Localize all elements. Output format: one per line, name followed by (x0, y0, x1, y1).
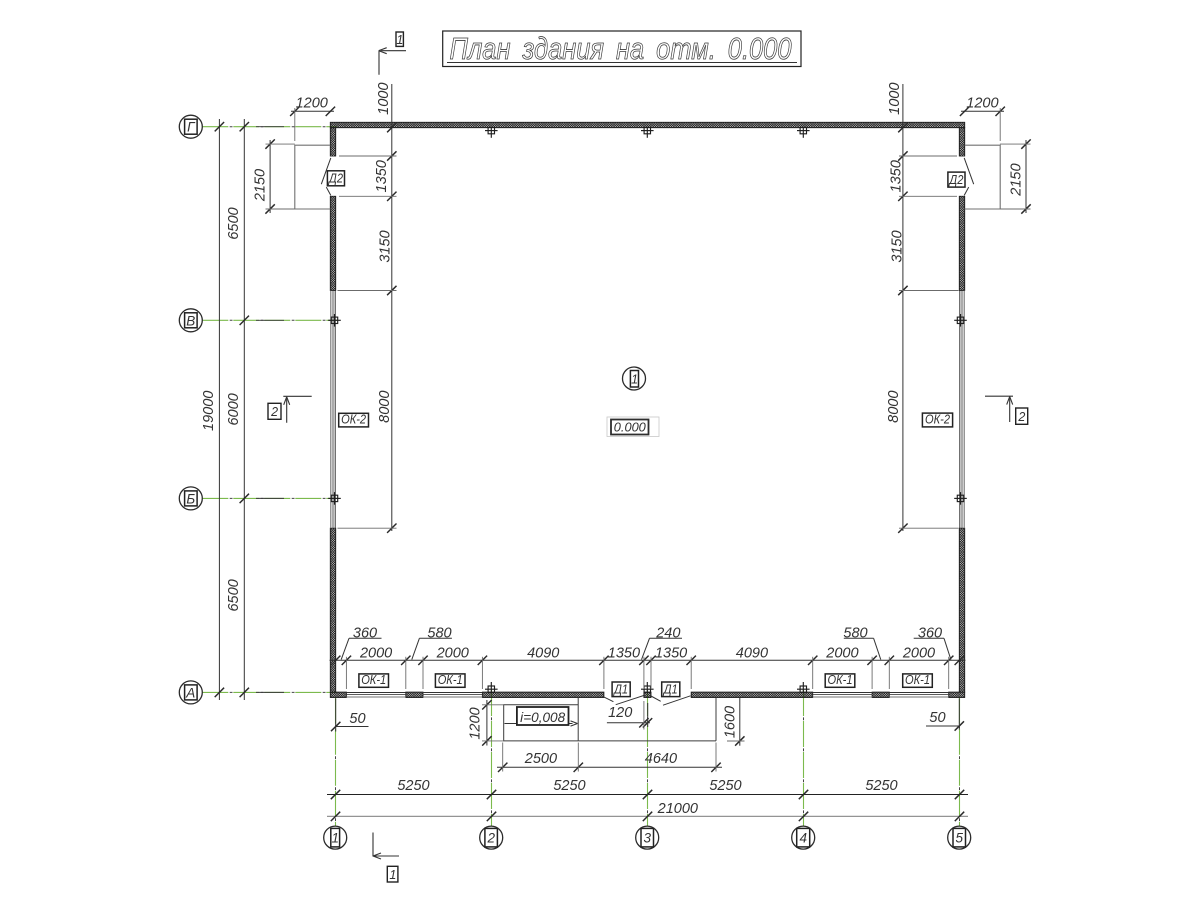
svg-text:1350: 1350 (655, 645, 687, 661)
svg-text:План здания на отм. 0.000: План здания на отм. 0.000 (450, 31, 792, 66)
svg-text:4640: 4640 (645, 751, 677, 767)
svg-text:8000: 8000 (886, 391, 902, 423)
svg-text:Д1: Д1 (612, 682, 628, 696)
svg-text:3: 3 (643, 831, 651, 846)
svg-text:1350: 1350 (889, 160, 905, 192)
svg-text:ОК-1: ОК-1 (828, 673, 853, 687)
svg-text:1000: 1000 (376, 83, 392, 115)
svg-text:3150: 3150 (378, 230, 394, 262)
svg-text:1600: 1600 (723, 706, 739, 738)
svg-text:580: 580 (843, 626, 867, 642)
svg-text:2: 2 (1017, 410, 1025, 424)
svg-text:50: 50 (929, 710, 945, 726)
svg-text:2: 2 (270, 405, 278, 419)
svg-text:4: 4 (799, 831, 807, 846)
svg-text:2500: 2500 (524, 751, 557, 767)
svg-text:1200: 1200 (966, 96, 998, 112)
svg-text:i=0,008: i=0,008 (520, 710, 565, 725)
svg-text:8000: 8000 (377, 391, 393, 423)
svg-text:21000: 21000 (657, 801, 698, 817)
svg-text:1: 1 (631, 372, 638, 386)
svg-text:ОК-1: ОК-1 (905, 673, 930, 687)
svg-text:6500: 6500 (226, 579, 242, 611)
svg-text:Д1: Д1 (662, 682, 678, 696)
svg-text:1: 1 (389, 868, 396, 882)
svg-text:5250: 5250 (553, 778, 585, 794)
svg-text:2000: 2000 (436, 645, 469, 661)
svg-text:1: 1 (331, 831, 339, 846)
svg-text:1350: 1350 (608, 645, 640, 661)
svg-text:1200: 1200 (468, 707, 484, 739)
svg-text:4090: 4090 (527, 645, 559, 661)
svg-text:240: 240 (655, 626, 680, 642)
svg-text:1000: 1000 (887, 83, 903, 115)
svg-text:ОК-1: ОК-1 (438, 673, 463, 687)
svg-text:360: 360 (353, 626, 377, 642)
svg-text:ОК-2: ОК-2 (341, 413, 366, 427)
svg-text:5: 5 (955, 831, 963, 846)
svg-text:ОК-1: ОК-1 (361, 673, 386, 687)
svg-text:1200: 1200 (296, 96, 328, 112)
svg-text:Б: Б (186, 491, 195, 506)
svg-text:360: 360 (918, 626, 942, 642)
svg-text:19000: 19000 (201, 391, 217, 431)
svg-text:6500: 6500 (226, 207, 242, 239)
svg-text:А: А (185, 685, 195, 700)
svg-text:Д2: Д2 (948, 173, 964, 187)
svg-text:В: В (186, 313, 195, 328)
svg-text:2000: 2000 (359, 645, 392, 661)
svg-text:120: 120 (608, 705, 632, 721)
svg-text:1350: 1350 (374, 160, 390, 192)
svg-text:2000: 2000 (825, 645, 858, 661)
svg-text:50: 50 (349, 711, 365, 727)
svg-text:2150: 2150 (252, 169, 268, 202)
svg-text:2000: 2000 (902, 645, 935, 661)
svg-text:0.000: 0.000 (614, 420, 646, 434)
svg-text:6000: 6000 (226, 393, 242, 425)
svg-text:5250: 5250 (865, 778, 897, 794)
svg-text:1: 1 (396, 33, 403, 47)
svg-text:4090: 4090 (736, 645, 768, 661)
svg-text:5250: 5250 (397, 778, 429, 794)
svg-text:580: 580 (427, 626, 451, 642)
svg-text:2: 2 (486, 831, 495, 846)
svg-text:ОК-2: ОК-2 (925, 413, 950, 427)
svg-text:3150: 3150 (890, 230, 906, 262)
svg-text:Д2: Д2 (327, 172, 343, 186)
svg-text:5250: 5250 (709, 778, 741, 794)
svg-text:2150: 2150 (1008, 163, 1024, 196)
